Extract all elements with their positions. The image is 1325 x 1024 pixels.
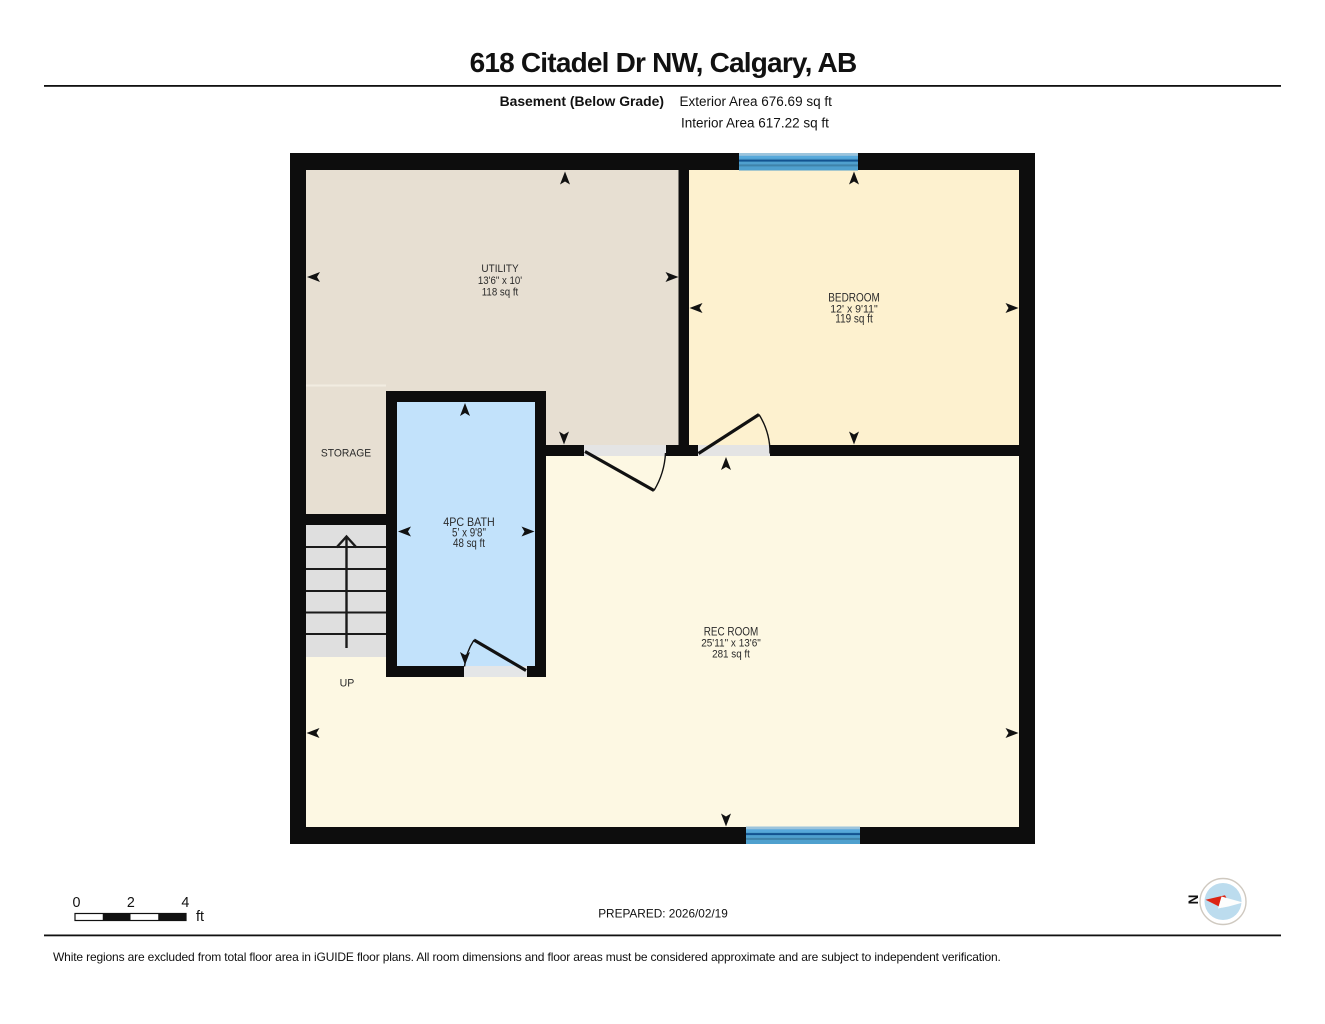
svg-text:Interior Area 617.22 sq ft: Interior Area 617.22 sq ft xyxy=(681,116,829,131)
svg-text:118 sq ft: 118 sq ft xyxy=(482,286,519,299)
svg-text:119 sq ft: 119 sq ft xyxy=(835,313,872,326)
svg-text:STORAGE: STORAGE xyxy=(321,447,371,460)
svg-text:White regions are excluded fro: White regions are excluded from total fl… xyxy=(53,950,1001,964)
svg-text:N: N xyxy=(1186,895,1201,905)
svg-text:UP: UP xyxy=(340,677,355,689)
svg-text:ft: ft xyxy=(196,909,204,925)
svg-text:4: 4 xyxy=(181,895,189,911)
svg-text:281 sq ft: 281 sq ft xyxy=(712,648,750,661)
svg-text:Exterior Area 676.69 sq ft: Exterior Area 676.69 sq ft xyxy=(680,94,833,109)
svg-text:2: 2 xyxy=(127,895,135,911)
svg-text:0: 0 xyxy=(73,895,81,911)
svg-text:Basement (Below Grade): Basement (Below Grade) xyxy=(500,93,664,109)
svg-text:PREPARED: 2026/02/19: PREPARED: 2026/02/19 xyxy=(598,907,728,921)
svg-text:48 sq ft: 48 sq ft xyxy=(453,537,485,550)
svg-text:618 Citadel Dr NW, Calgary, AB: 618 Citadel Dr NW, Calgary, AB xyxy=(470,47,857,78)
